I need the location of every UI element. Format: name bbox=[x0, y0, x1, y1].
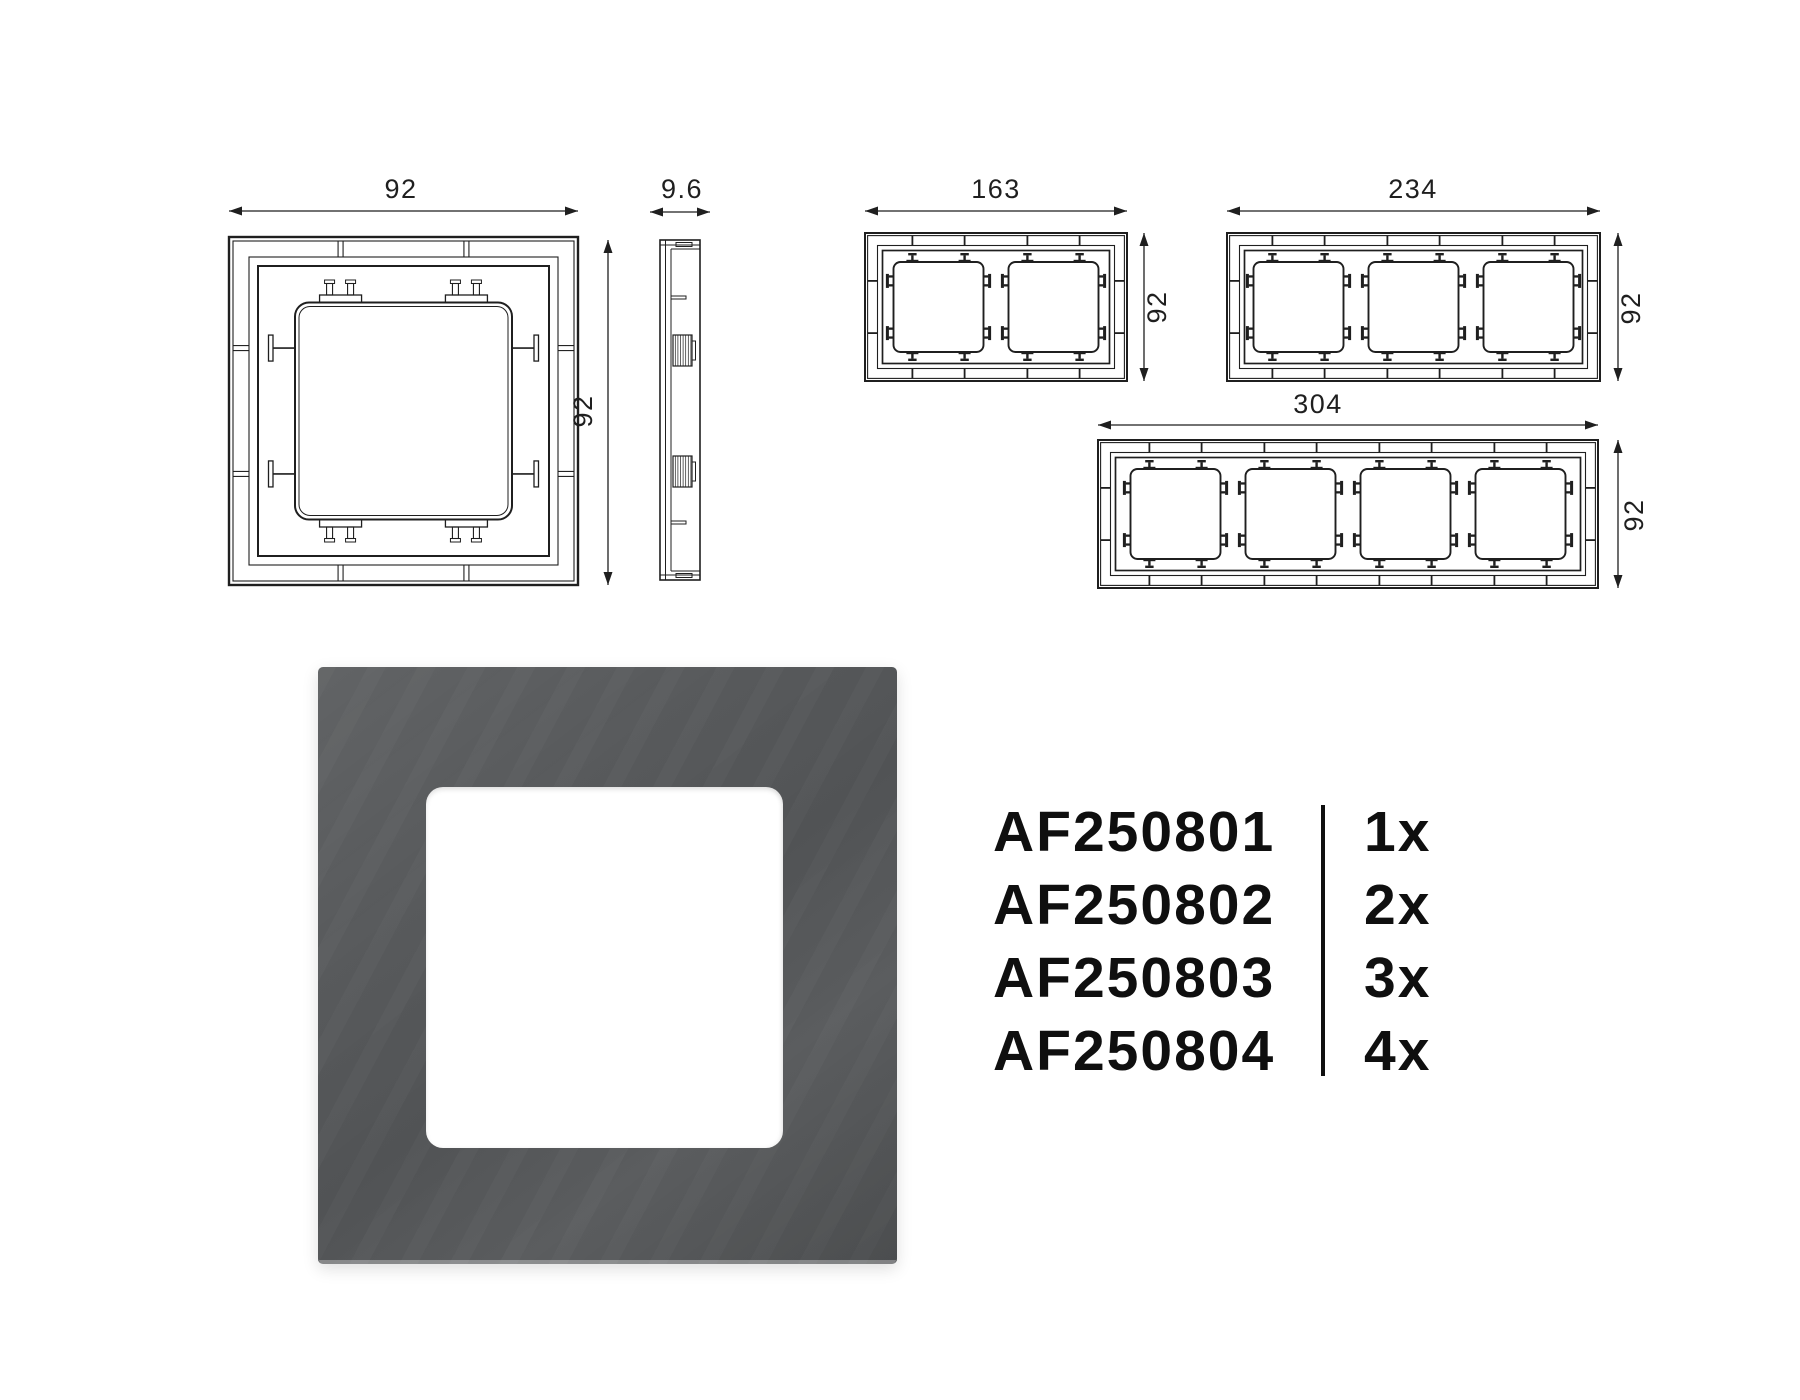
drawing-1gang-rear-view bbox=[229, 237, 578, 585]
technical-drawings: 92 92 9.6 163 92 234 92 304 92 bbox=[0, 0, 1800, 700]
part-quantity: 4x bbox=[1323, 1014, 1473, 1087]
part-sku: AF250804 bbox=[993, 1014, 1323, 1087]
dim-label-4gang-height: 92 bbox=[1619, 498, 1649, 531]
part-quantity: 1x bbox=[1323, 795, 1473, 868]
product-photo bbox=[318, 667, 897, 1264]
dim-label-side-depth: 9.6 bbox=[661, 174, 703, 204]
dim-label-1gang-height: 92 bbox=[568, 394, 598, 427]
dim-label-1gang-width: 92 bbox=[384, 174, 417, 204]
dim-label-4gang-width: 304 bbox=[1293, 389, 1343, 419]
drawing-4gang-rear-view bbox=[1098, 440, 1598, 588]
dim-label-2gang-height: 92 bbox=[1142, 290, 1172, 323]
product-photo-opening bbox=[426, 787, 783, 1148]
drawing-3gang-rear-view bbox=[1227, 233, 1600, 381]
drawing-2gang-rear-view bbox=[865, 233, 1127, 381]
part-list-divider bbox=[1321, 805, 1325, 1076]
dim-label-3gang-height: 92 bbox=[1616, 291, 1646, 324]
part-quantity: 2x bbox=[1323, 868, 1473, 941]
part-sku: AF250802 bbox=[993, 868, 1323, 941]
part-sku: AF250801 bbox=[993, 795, 1323, 868]
part-sku: AF250803 bbox=[993, 941, 1323, 1014]
dim-label-2gang-width: 163 bbox=[971, 174, 1021, 204]
part-quantity: 3x bbox=[1323, 941, 1473, 1014]
page: 92 92 9.6 163 92 234 92 304 92 AF250801 … bbox=[0, 0, 1800, 1400]
dim-label-3gang-width: 234 bbox=[1388, 174, 1438, 204]
dimension-arrows bbox=[229, 207, 1623, 589]
drawing-side-profile bbox=[660, 240, 700, 580]
part-number-list: AF250801 1x AF250802 2x AF250803 3x AF25… bbox=[993, 795, 1473, 1087]
